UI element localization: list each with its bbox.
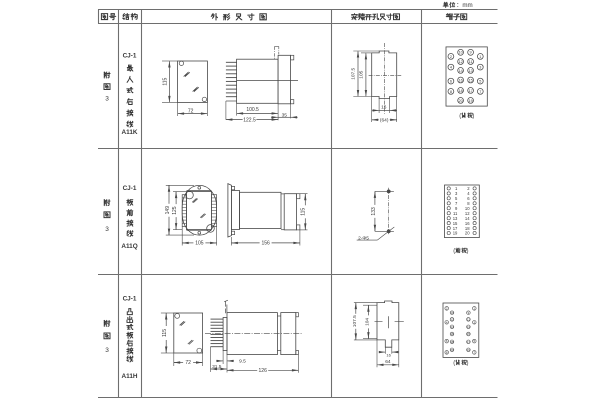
svg-text:3: 3 xyxy=(479,66,481,70)
svg-text:107.5: 107.5 xyxy=(351,67,357,79)
svg-text:20: 20 xyxy=(465,231,470,236)
svg-text:105: 105 xyxy=(195,240,204,246)
svg-text:3: 3 xyxy=(105,226,109,233)
svg-text:3: 3 xyxy=(105,347,109,354)
svg-text:126: 126 xyxy=(259,368,268,374)
svg-text:(: ( xyxy=(459,113,461,119)
svg-text:10: 10 xyxy=(450,311,454,315)
svg-text:CJ-1: CJ-1 xyxy=(123,53,137,60)
svg-text:19: 19 xyxy=(467,348,471,352)
svg-text:9.5: 9.5 xyxy=(239,359,246,365)
svg-text:72: 72 xyxy=(185,360,191,366)
svg-text:6: 6 xyxy=(450,80,452,84)
svg-text:11: 11 xyxy=(469,60,473,64)
svg-text:5: 5 xyxy=(479,80,481,84)
svg-text:): ) xyxy=(467,361,469,367)
svg-text:35: 35 xyxy=(282,112,288,118)
svg-text:107.5: 107.5 xyxy=(352,315,358,327)
svg-text:14: 14 xyxy=(458,69,462,73)
svg-text:13: 13 xyxy=(467,325,471,329)
svg-text:19: 19 xyxy=(453,231,458,236)
svg-text:19: 19 xyxy=(468,99,472,103)
svg-text:7: 7 xyxy=(479,90,481,94)
svg-text:): ) xyxy=(472,113,474,119)
svg-text:125: 125 xyxy=(172,206,178,215)
svg-text:20: 20 xyxy=(450,348,454,352)
svg-text:16: 16 xyxy=(386,353,391,358)
svg-text:18: 18 xyxy=(458,89,462,93)
svg-text:115: 115 xyxy=(162,329,168,337)
svg-text:104: 104 xyxy=(365,318,371,326)
svg-text:12: 12 xyxy=(458,60,462,64)
svg-text:A11K: A11K xyxy=(122,129,138,136)
svg-text:17: 17 xyxy=(468,89,472,93)
svg-text:3: 3 xyxy=(105,96,109,103)
svg-text:10: 10 xyxy=(458,51,462,55)
svg-text:31.5: 31.5 xyxy=(212,364,222,370)
svg-text:：mm: ：mm xyxy=(456,2,473,9)
svg-text:(64): (64) xyxy=(380,118,389,124)
svg-text:20: 20 xyxy=(458,99,462,103)
svg-text:CJ-1: CJ-1 xyxy=(123,295,137,302)
svg-text:156: 156 xyxy=(261,241,270,247)
svg-text:18: 18 xyxy=(450,340,454,344)
svg-text:1: 1 xyxy=(479,55,481,59)
svg-text:2-Φ5: 2-Φ5 xyxy=(358,235,369,241)
svg-text:(: ( xyxy=(453,361,455,367)
svg-text:16: 16 xyxy=(450,332,454,336)
svg-text:64: 64 xyxy=(385,359,391,365)
svg-text:115: 115 xyxy=(163,78,169,86)
svg-text:A11Q: A11Q xyxy=(121,243,137,250)
svg-text:122.5: 122.5 xyxy=(243,117,256,123)
svg-text:100.5: 100.5 xyxy=(246,107,259,113)
svg-text:16: 16 xyxy=(381,104,387,110)
svg-text:4: 4 xyxy=(450,66,452,70)
svg-text:11: 11 xyxy=(467,318,470,322)
svg-text:13: 13 xyxy=(468,69,472,73)
svg-text:A11H: A11H xyxy=(122,373,138,380)
svg-text:72: 72 xyxy=(188,109,194,115)
svg-text:115: 115 xyxy=(301,208,307,216)
svg-text:133: 133 xyxy=(371,207,377,216)
svg-text:149: 149 xyxy=(165,206,171,215)
svg-text:9: 9 xyxy=(470,51,472,55)
svg-text:15: 15 xyxy=(468,78,472,82)
svg-text:): ) xyxy=(467,249,469,255)
svg-text:105: 105 xyxy=(358,70,364,78)
svg-text:CJ-1: CJ-1 xyxy=(123,185,137,192)
svg-text:(: ( xyxy=(453,249,455,255)
svg-text:2: 2 xyxy=(450,55,452,59)
svg-text:15: 15 xyxy=(467,332,471,336)
svg-text:12: 12 xyxy=(450,318,454,322)
svg-text:14: 14 xyxy=(450,325,454,329)
svg-text:17: 17 xyxy=(467,340,471,344)
svg-text:8: 8 xyxy=(450,90,452,94)
svg-text:16: 16 xyxy=(458,78,462,82)
